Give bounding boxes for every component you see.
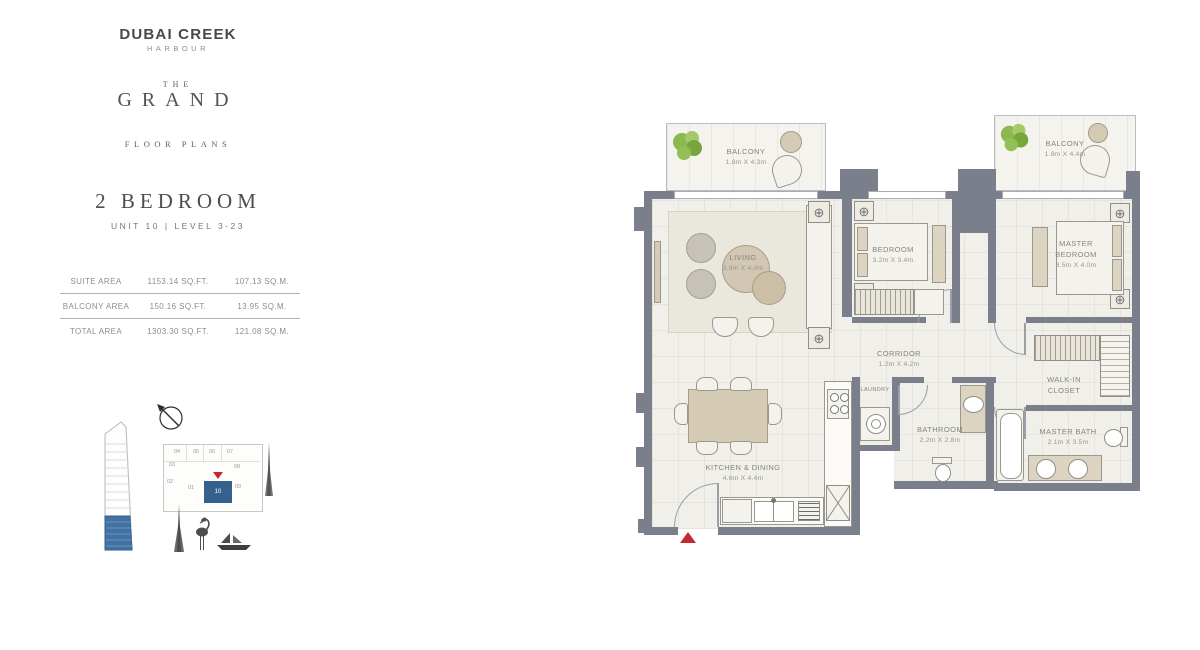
closet-shelves (1100, 335, 1130, 397)
keyplan-gridline (186, 445, 187, 461)
unit-subtitle: UNIT 10 | LEVEL 3-23 (68, 221, 288, 231)
washer-door (871, 419, 881, 429)
spire-icon (172, 504, 186, 552)
area-sqm: 107.13 SQ.M. (224, 277, 300, 286)
table-row: BALCONY AREA 150.16 SQ.FT. 13.95 SQ.M. (60, 294, 300, 319)
wall (644, 191, 652, 535)
closet-rack (1034, 335, 1100, 361)
toilet-bowl (935, 464, 951, 482)
area-label: SUITE AREA (60, 277, 132, 286)
room-name: MASTER BEDROOM (1044, 239, 1108, 261)
room-name: BEDROOM (858, 245, 928, 256)
keyplan-unit: 09 (231, 484, 245, 490)
burner (840, 405, 849, 414)
pillow (1112, 259, 1122, 291)
room-name: BATHROOM (894, 425, 986, 436)
dining-chair (768, 403, 782, 425)
room-label-laundry: LAUNDRY (854, 387, 896, 395)
wall-tab (638, 519, 648, 533)
wall-tab (634, 207, 644, 231)
keyplan-unit: 08 (230, 464, 244, 470)
wall (988, 199, 996, 323)
window (1002, 191, 1124, 199)
room-label-corridor: CORRIDOR 1.2m X 4.2m (852, 349, 946, 370)
room-name: LAUNDRY (854, 387, 896, 395)
wall-tab (840, 169, 878, 193)
room-name: CORRIDOR (852, 349, 946, 360)
room-dims: 1.8m X 4.4m (994, 150, 1136, 160)
bedroom-door-leaf (950, 289, 952, 323)
kitchen-sink (754, 501, 794, 522)
area-sqft: 150.16 SQ.FT. (132, 302, 224, 311)
wall (994, 483, 1140, 491)
wall (718, 527, 860, 535)
compass-icon (153, 400, 187, 434)
room-name: LIVING (688, 253, 798, 264)
wardrobe-section (914, 289, 944, 315)
nightstand-fan (854, 201, 874, 221)
dining-chair (696, 441, 718, 455)
area-sqft: 1153.14 SQ.FT. (132, 277, 224, 286)
pillow (1112, 225, 1122, 257)
faucet (771, 498, 776, 503)
brand-subtitle: HARBOUR (68, 44, 288, 53)
area-label: BALCONY AREA (60, 302, 132, 311)
window (674, 191, 818, 199)
room-dims: 3.9m X 4.4m (688, 264, 798, 274)
toilet-tank (932, 457, 952, 464)
burner (830, 405, 839, 414)
keyplan-unit: 02 (163, 479, 177, 485)
wall-tab (958, 169, 996, 193)
wall (1026, 317, 1132, 323)
brand-name: DUBAI CREEK (68, 26, 288, 43)
sink (1036, 459, 1056, 479)
bench (932, 225, 946, 283)
floor-plans-tagline: FLOOR PLANS (68, 139, 288, 149)
dishwasher (798, 501, 820, 521)
room-dims: 4.6m X 4.4m (668, 474, 818, 484)
wall-tab (1126, 171, 1140, 193)
wall (852, 445, 900, 451)
room-label-kitchen: KITCHEN & DINING 4.6m X 4.4m (668, 463, 818, 484)
sofa (806, 205, 832, 329)
dining-table (688, 389, 768, 443)
wall (644, 527, 678, 535)
keyplan-unit: 06 (205, 449, 219, 455)
coffee-table (752, 271, 786, 305)
unit-title: 2 BEDROOM (68, 189, 288, 214)
keyplan-gridline (221, 445, 222, 461)
yacht-icon (214, 532, 254, 552)
burner (840, 393, 849, 402)
room-dims: 1.2m X 4.2m (852, 360, 946, 370)
room-label-balcony-right: BALCONY 1.8m X 4.4m (994, 139, 1136, 160)
dining-chair (730, 377, 752, 391)
wall (986, 383, 994, 483)
wall (1026, 405, 1132, 411)
room-label-balcony-left: BALCONY 1.8m X 4.3m (666, 147, 826, 168)
wall (894, 481, 998, 489)
keyplan-unit: 01 (184, 485, 198, 491)
keyplan-unit-marker (213, 472, 223, 479)
wardrobe (854, 289, 914, 315)
room-label-walk-in-closet: WALK-IN CLOSET (1036, 375, 1092, 397)
room-label-master-bath: MASTER BATH 2.1m X 3.5m (1018, 427, 1118, 448)
base-cabinet (722, 499, 752, 523)
shaft (956, 199, 990, 233)
table-row: TOTAL AREA 1303.30 SQ.FT. 121.08 SQ.M. (60, 319, 300, 343)
tower-icon (102, 420, 136, 552)
room-label-living: LIVING 3.9m X 4.4m (688, 253, 798, 274)
keyplan-unit: 03 (165, 462, 179, 468)
area-sqm: 121.08 SQ.M. (224, 327, 300, 336)
cabinet-x (826, 485, 850, 521)
keyplan-highlighted-unit: 10 (204, 481, 232, 503)
keyplan-unit: 04 (170, 449, 184, 455)
room-name: BALCONY (666, 147, 826, 158)
keyplan-gridline (203, 445, 204, 461)
entry-door-leaf (717, 483, 719, 527)
wall (852, 317, 926, 323)
wall (644, 191, 674, 199)
room-dims: 2.2m X 2.8m (894, 436, 986, 446)
sink (963, 396, 984, 413)
wall (952, 199, 960, 323)
side-table-fan (808, 201, 830, 223)
void (860, 451, 894, 487)
logo-grand: GRAND (68, 89, 288, 112)
floorplan: BALCONY 1.8m X 4.3m BALCONY 1.8m X 4.4m … (630, 95, 1190, 560)
dining-chair (674, 403, 688, 425)
dining-chair (696, 377, 718, 391)
room-label-bedroom: BEDROOM 3.2m X 3.4m (858, 245, 928, 266)
side-table-fan (808, 327, 830, 349)
table-row: SUITE AREA 1153.14 SQ.FT. 107.13 SQ.M. (60, 269, 300, 294)
area-table: SUITE AREA 1153.14 SQ.FT. 107.13 SQ.M. B… (60, 269, 300, 343)
sink-divider (773, 502, 774, 521)
tv-console (654, 241, 661, 303)
logo-the: THE (68, 80, 288, 89)
room-name: BALCONY (994, 139, 1136, 150)
room-dims: 1.8m X 4.3m (666, 158, 826, 168)
wall (852, 377, 860, 535)
burner (830, 393, 839, 402)
wall-tab (636, 447, 644, 467)
entry-marker (680, 532, 696, 543)
dining-chair (730, 441, 752, 455)
room-dims: 2.1m X 3.5m (1018, 438, 1118, 448)
window (868, 191, 946, 199)
room-name: WALK-IN CLOSET (1036, 375, 1092, 397)
area-sqft: 1303.30 SQ.FT. (132, 327, 224, 336)
room-label-master-bedroom: MASTER BEDROOM 3.5m X 4.0m (1044, 239, 1108, 271)
wall-tab (636, 393, 644, 413)
room-dims: 3.2m X 3.4m (858, 256, 928, 266)
spire-icon (263, 442, 275, 496)
nightstand-fan (1110, 203, 1130, 223)
room-name: MASTER BATH (1018, 427, 1118, 438)
room-dims: 3.5m X 4.0m (1044, 261, 1108, 271)
master-suite-door-leaf (1024, 323, 1026, 355)
wall (842, 191, 852, 317)
sink (1068, 459, 1088, 479)
bathroom-door-leaf (898, 385, 900, 415)
keyplan-unit: 05 (189, 449, 203, 455)
keyplan-unit: 07 (223, 449, 237, 455)
area-label: TOTAL AREA (60, 327, 132, 336)
area-sqm: 13.95 SQ.M. (224, 302, 300, 311)
wall (1132, 191, 1140, 491)
room-name: KITCHEN & DINING (668, 463, 818, 474)
room-label-bathroom: BATHROOM 2.2m X 2.8m (894, 425, 986, 446)
flamingo-icon (194, 514, 212, 554)
